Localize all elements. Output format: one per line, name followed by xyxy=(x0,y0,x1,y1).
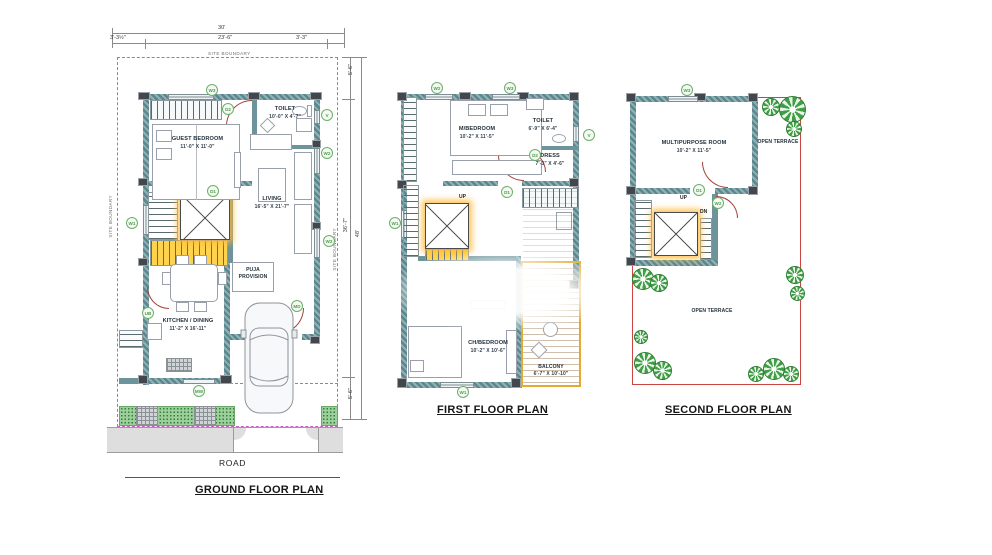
room-size: 10'-2" X 10'-6" xyxy=(452,348,524,355)
room-name: OPEN TERRACE xyxy=(758,139,799,145)
room-name: LIVING xyxy=(262,196,281,202)
road-edge-line xyxy=(125,477,340,478)
kitchen-stove xyxy=(166,358,192,372)
outside-steps xyxy=(119,330,143,348)
chair xyxy=(194,255,207,265)
dimension-tick xyxy=(342,57,367,58)
window-w1 xyxy=(440,382,474,388)
dim-inner-width: 23'-6" xyxy=(218,35,232,41)
window-tag: W3 xyxy=(504,82,516,94)
dining-table xyxy=(170,264,218,302)
room-name: PUJA PROVISION xyxy=(239,267,268,280)
room-label-puja: PUJA PROVISION xyxy=(234,267,272,281)
hedge-strip xyxy=(321,406,338,426)
dimension-line xyxy=(113,33,344,34)
paver-block xyxy=(194,406,216,426)
column xyxy=(397,92,407,101)
stair-flight xyxy=(700,218,712,260)
room-label-child-bedroom: CH/BEDROOM 10'-2" X 10'-6" xyxy=(452,340,524,354)
room-size: 7'-3" X 4'-6" xyxy=(527,161,573,168)
column xyxy=(312,140,321,148)
door-tag: D1 xyxy=(501,186,513,198)
sofa xyxy=(294,152,312,200)
dimension-tick xyxy=(344,28,345,48)
dimension-tick xyxy=(342,377,355,378)
door-tag: D2 xyxy=(529,149,541,161)
dimension-tick xyxy=(327,39,328,49)
chair xyxy=(162,272,171,285)
stair-up-label: UP xyxy=(680,195,687,201)
wall-segment xyxy=(630,260,718,266)
column xyxy=(310,336,320,344)
sofa xyxy=(250,134,292,150)
window-tag: W1 xyxy=(389,217,401,229)
pillow xyxy=(490,104,508,116)
tree xyxy=(762,98,780,116)
room-label-multipurpose: MULTIPURPOSE ROOM 10'-2" X 11'-5" xyxy=(644,140,744,154)
room-size: 6'-7" X 10'-10" xyxy=(524,371,578,378)
column xyxy=(397,378,407,388)
column xyxy=(569,178,579,187)
column xyxy=(138,375,148,384)
column xyxy=(626,257,636,266)
room-label-toilet: TOILET 10'-0" X 4'-7" xyxy=(255,106,315,120)
room-name: BALCONY xyxy=(538,364,563,370)
dim-inner-depth: 36'-7" xyxy=(343,218,349,232)
ground-floor-title: GROUND FLOOR PLAN xyxy=(195,484,324,496)
duct-strip xyxy=(403,97,417,182)
dimension-tick xyxy=(145,39,146,49)
chair xyxy=(194,302,207,312)
room-label-living: LIVING 16'-5" X 21'-7" xyxy=(242,196,302,210)
room-size: 11'-2" X 16'-11" xyxy=(150,326,226,333)
room-name: OPEN TERRACE xyxy=(692,308,733,314)
door-tag: D2 xyxy=(222,103,234,115)
tree xyxy=(779,96,806,123)
window-tag: W1 xyxy=(457,386,469,398)
site-boundary-label-top: SITE BOUNDARY xyxy=(208,51,251,56)
tree xyxy=(783,366,799,382)
site-boundary-label-right: SITE BOUNDARY xyxy=(332,228,337,271)
room-size: 6'-9" X 6'-4" xyxy=(522,126,564,133)
site-boundary-label-left: SITE BOUNDARY xyxy=(108,195,113,238)
room-label-master-bedroom: M/BEDROOM 10'-2" X 11'-5" xyxy=(442,126,512,140)
column xyxy=(626,93,636,102)
room-name: TOILET xyxy=(275,106,295,112)
tree xyxy=(763,358,785,380)
room-label-kitchen: KITCHEN / DINING 11'-2" X 16'-11" xyxy=(150,318,226,332)
room-label-balcony: BALCONY 6'-7" X 10'-10" xyxy=(524,364,578,378)
window-w2 xyxy=(314,228,320,258)
dim-total-width: 30' xyxy=(218,25,225,31)
tree xyxy=(786,266,804,284)
window-w2 xyxy=(425,94,453,100)
stair-dn-label: DN xyxy=(700,209,707,215)
second-floor-title: SECOND FLOOR PLAN xyxy=(665,404,792,416)
wall-segment xyxy=(630,188,690,194)
door-tag: D1 xyxy=(207,185,219,197)
column xyxy=(569,92,579,101)
room-name: MULTIPURPOSE ROOM xyxy=(662,140,727,146)
room-name: DRESS xyxy=(540,153,560,159)
stair-landing xyxy=(425,203,469,249)
tv-unit xyxy=(234,152,241,188)
wall-segment xyxy=(314,94,320,340)
dimension-line xyxy=(361,57,362,419)
room-name: KITCHEN / DINING xyxy=(163,318,214,324)
ventilator-tag: V xyxy=(321,109,333,121)
pillow xyxy=(410,360,424,372)
window-tag: W2 xyxy=(431,82,443,94)
open-deck xyxy=(523,188,577,258)
dimension-tick xyxy=(342,419,367,420)
window-w3 xyxy=(668,96,698,102)
column xyxy=(138,258,148,266)
stair-up-label: UP xyxy=(459,194,466,200)
column xyxy=(511,378,521,388)
wardrobe xyxy=(150,100,222,120)
room-size: 10'-0" X 4'-7" xyxy=(255,114,315,121)
door-tag: MD xyxy=(291,300,303,312)
window-tag: W2 xyxy=(321,147,333,159)
dimension-line xyxy=(350,57,351,419)
wc xyxy=(552,134,566,143)
watermark-haze xyxy=(395,252,615,330)
tree xyxy=(634,330,648,344)
ventilator-v xyxy=(573,126,579,142)
window-tag: MW xyxy=(193,385,205,397)
room-label-toilet: TOILET 6'-9" X 6'-4" xyxy=(522,118,564,132)
dimension-tick xyxy=(342,99,355,100)
column xyxy=(748,93,758,102)
ventilator-tag: V xyxy=(583,129,595,141)
window-mw xyxy=(183,379,215,384)
chair xyxy=(176,302,189,312)
room-label-open-terrace: OPEN TERRACE xyxy=(756,139,800,146)
window-tag: W1 xyxy=(126,217,138,229)
room-name: CH/BEDROOM xyxy=(468,340,508,346)
column xyxy=(626,186,636,195)
dim-front-margin: 5'-6" xyxy=(348,64,354,75)
tree xyxy=(748,366,764,382)
stair-flight xyxy=(403,185,419,257)
stair-flight xyxy=(634,200,652,258)
dim-rear-margin: 5'-6" xyxy=(348,388,354,399)
room-size: 10'-2" X 11'-5" xyxy=(644,148,744,155)
door-tag: D1 xyxy=(693,184,705,196)
stair-landing xyxy=(654,212,698,256)
road-label: ROAD xyxy=(219,458,246,468)
wall-segment xyxy=(443,181,498,186)
tree xyxy=(786,121,802,137)
window-tag: W3 xyxy=(206,84,218,96)
room-name: TOILET xyxy=(533,118,553,124)
washbasin xyxy=(526,98,544,110)
column xyxy=(138,178,148,186)
stair-flight-highlight xyxy=(150,240,228,266)
floor-plan-drawing: 30' 3'-3½" 23'-6" 3'-3" SITE BOUNDARY SI… xyxy=(0,0,992,555)
window-w2 xyxy=(314,148,320,174)
window-tag: W2 xyxy=(712,197,724,209)
column xyxy=(248,92,260,100)
room-label-open-terrace: OPEN TERRACE xyxy=(682,308,742,315)
room-size: 16'-5" X 21'-7" xyxy=(242,204,302,211)
dimension-line xyxy=(113,43,344,44)
car-top-view xyxy=(240,300,298,416)
dim-left-margin: 3'-3½" xyxy=(110,35,126,41)
room-name: GUEST BEDROOM xyxy=(172,136,223,142)
column xyxy=(310,92,322,100)
pillow xyxy=(468,104,486,116)
room-size: 11'-0" X 11'-0" xyxy=(160,144,235,151)
tree xyxy=(653,361,672,380)
column xyxy=(459,92,471,100)
tree xyxy=(650,274,668,292)
column xyxy=(138,92,150,100)
door-tag: UB xyxy=(142,307,154,319)
stair-landing xyxy=(180,196,230,240)
chair xyxy=(218,272,227,285)
room-name: M/BEDROOM xyxy=(459,126,495,132)
window-tag: W2 xyxy=(323,235,335,247)
room-label-guest-bedroom: GUEST BEDROOM 11'-0" X 11'-0" xyxy=(160,136,235,150)
chair xyxy=(176,255,189,265)
column xyxy=(748,186,758,195)
column xyxy=(220,375,232,384)
tree xyxy=(790,286,805,301)
sofa xyxy=(294,204,312,254)
dim-right-margin: 3'-3" xyxy=(296,35,307,41)
first-floor-title: FIRST FLOOR PLAN xyxy=(437,404,548,416)
paver-block xyxy=(136,406,158,426)
dim-total-depth: 48' xyxy=(355,230,361,237)
window-tag: W3 xyxy=(681,84,693,96)
room-size: 10'-2" X 11'-5" xyxy=(442,134,512,141)
